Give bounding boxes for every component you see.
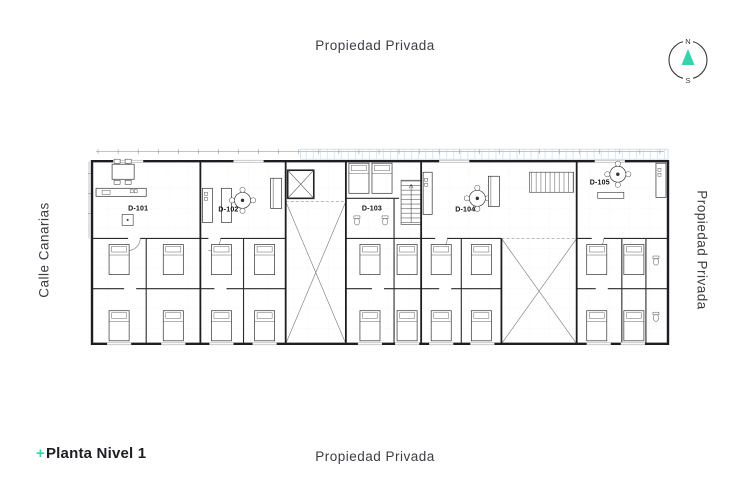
label-propiedad-privada-top: Propiedad Privada <box>315 38 435 53</box>
compass-north-label: N <box>685 37 690 46</box>
label-propiedad-privada-right: Propiedad Privada <box>695 190 710 310</box>
compass-south-label: S <box>685 76 690 85</box>
label-calle-canarias: Calle Canarias <box>37 202 52 298</box>
unit-label-d-101: D-101 <box>128 205 148 212</box>
north-arrow-icon <box>682 49 695 65</box>
stair-flight-b <box>530 172 574 192</box>
unit-label-d-102: D-102 <box>218 206 238 213</box>
floor-plan: D-101D-102D-103D-104D-105 <box>88 148 670 349</box>
unit-label-d-103: D-103 <box>362 205 382 212</box>
unit-label-d-105: D-105 <box>590 179 610 186</box>
compass-icon: N S <box>663 31 713 89</box>
unit-label-d-104: D-104 <box>455 206 475 213</box>
plan-title: +Planta Nivel 1 <box>36 445 146 462</box>
label-propiedad-privada-bottom: Propiedad Privada <box>315 449 435 464</box>
plan-title-text: Planta Nivel 1 <box>46 445 146 462</box>
elevator-shaft <box>288 170 314 198</box>
neighbour-grid-strip <box>301 149 668 159</box>
plus-icon: + <box>36 445 45 462</box>
